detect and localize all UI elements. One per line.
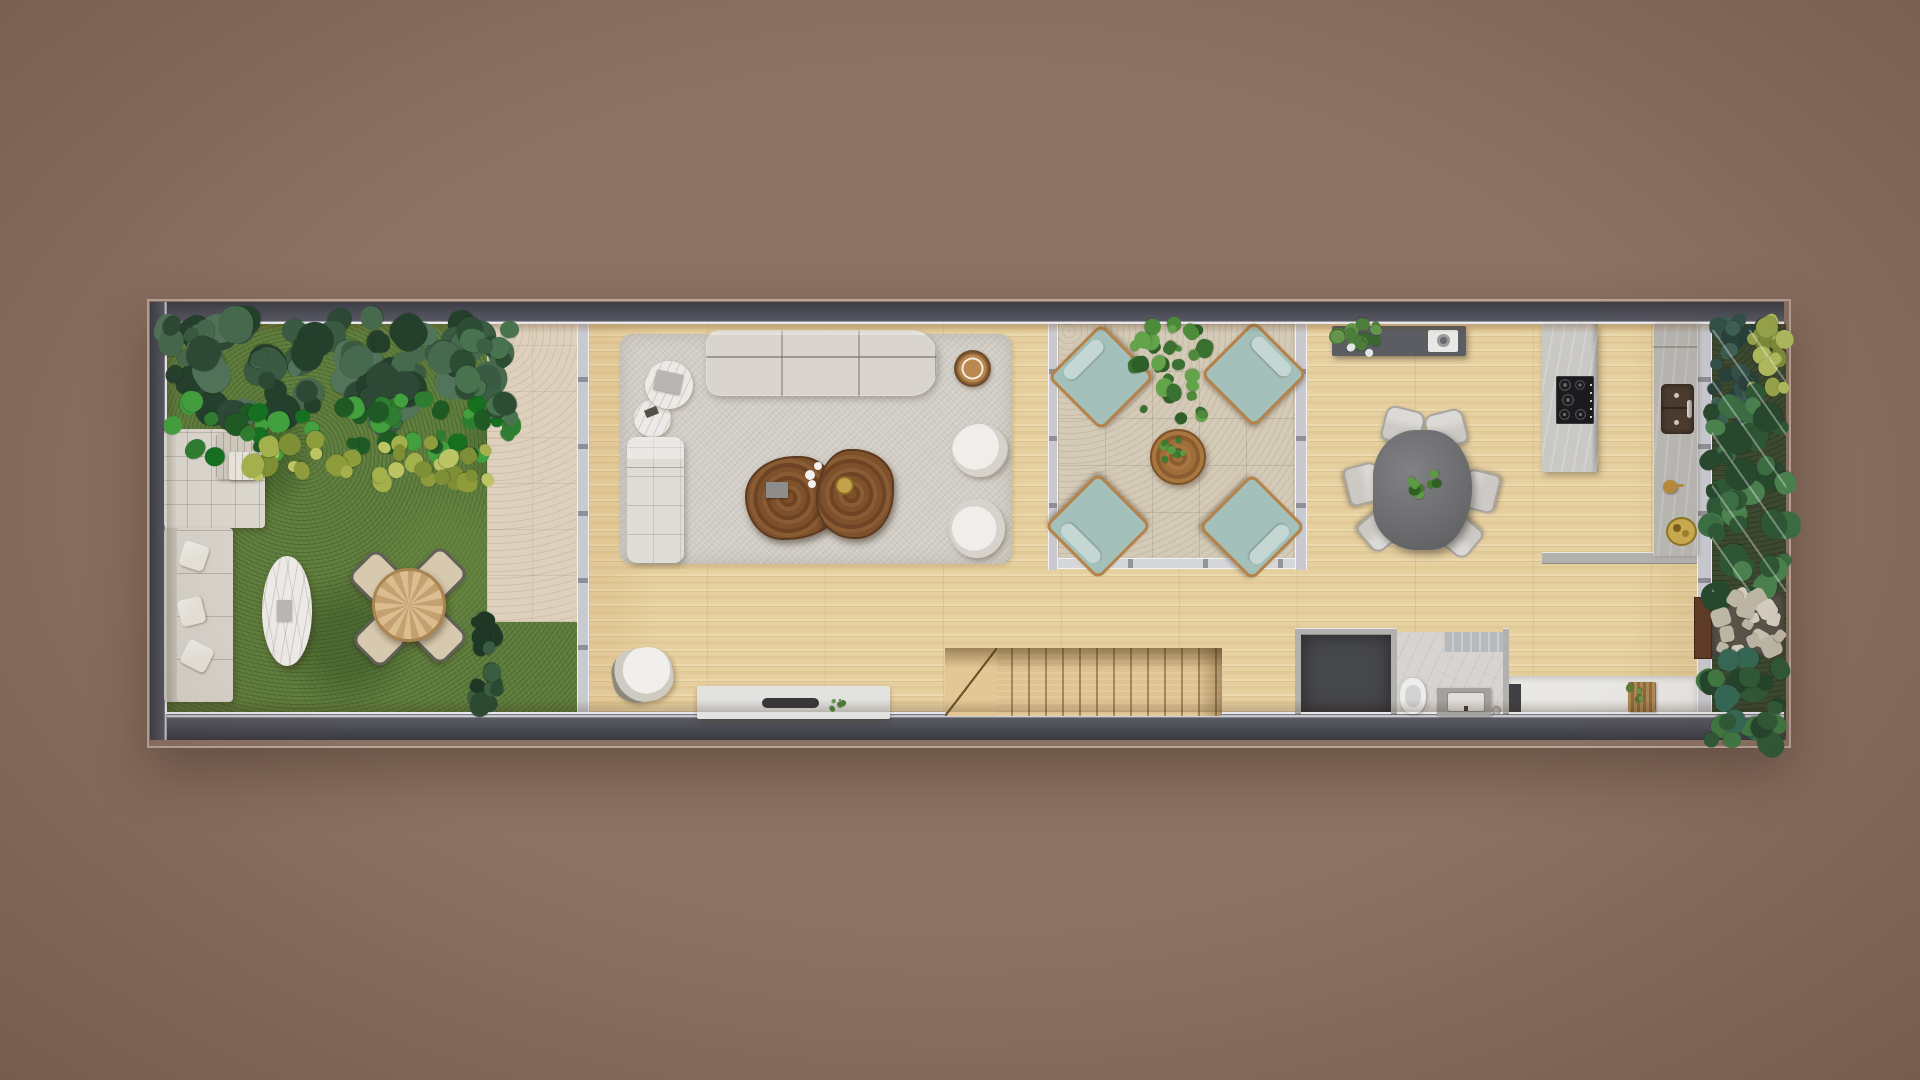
gold-bowl (835, 476, 854, 495)
storage-room-floor (1301, 635, 1391, 712)
burner (1575, 409, 1586, 420)
dining-table (1373, 430, 1472, 550)
swivel-armchair (949, 499, 1005, 558)
gold-tray (1666, 517, 1697, 546)
counter-divider (1653, 346, 1697, 348)
vanity-faucet (1464, 706, 1468, 711)
burner (1559, 409, 1570, 420)
white-dish (805, 470, 815, 480)
wall-bottom (150, 714, 1784, 740)
storage-room-wall (1295, 628, 1395, 635)
faucet (1687, 400, 1692, 418)
brass-spout (1676, 484, 1684, 487)
living-sofa (706, 330, 937, 396)
swivel-armchair (952, 424, 1008, 477)
decor-box (766, 482, 788, 498)
gas-cooktop (1556, 376, 1594, 424)
side-garden-bed (1712, 324, 1786, 740)
wall-top (150, 302, 1784, 324)
soundbar (762, 698, 819, 708)
white-dish (814, 462, 822, 470)
side-garden-stone-path (1712, 592, 1784, 656)
toilet-bowl (1405, 685, 1421, 707)
white-dish (808, 480, 816, 488)
stair-landing (945, 648, 997, 716)
wood-stool (954, 350, 991, 387)
sink-drain (1674, 420, 1679, 425)
cooktop-knobs (1590, 382, 1592, 418)
side-garden-gate (1694, 597, 1712, 659)
burner (1562, 394, 1574, 406)
shower-marble-wall (1443, 632, 1503, 652)
toilet (1400, 678, 1426, 714)
patio-coffee-table (1150, 429, 1206, 485)
bathroom-wall-left (1391, 628, 1397, 714)
burner (1575, 380, 1585, 390)
garden-glass-wall (577, 324, 589, 712)
bottle (1673, 524, 1681, 532)
slab-coffee-table (816, 449, 894, 539)
brass-kettle (1663, 480, 1677, 493)
bottle (1682, 530, 1689, 537)
garden-table-tray (277, 600, 292, 621)
staircase (945, 648, 1222, 716)
burner (1559, 379, 1571, 391)
doormat (1628, 682, 1656, 712)
garden-dining-table (372, 568, 446, 642)
sink-drain (1674, 393, 1679, 398)
kitchen-sink (1661, 384, 1694, 434)
storage-room-wall-left (1295, 628, 1301, 714)
entry-floor (1509, 676, 1697, 712)
garden-path (487, 324, 577, 622)
garden-daybed-pillow (228, 452, 258, 480)
sideboard-bowl (1437, 334, 1450, 347)
entry-cabinet (1509, 684, 1521, 712)
chaise-lounge (627, 437, 684, 563)
floor-drain (1492, 706, 1501, 715)
